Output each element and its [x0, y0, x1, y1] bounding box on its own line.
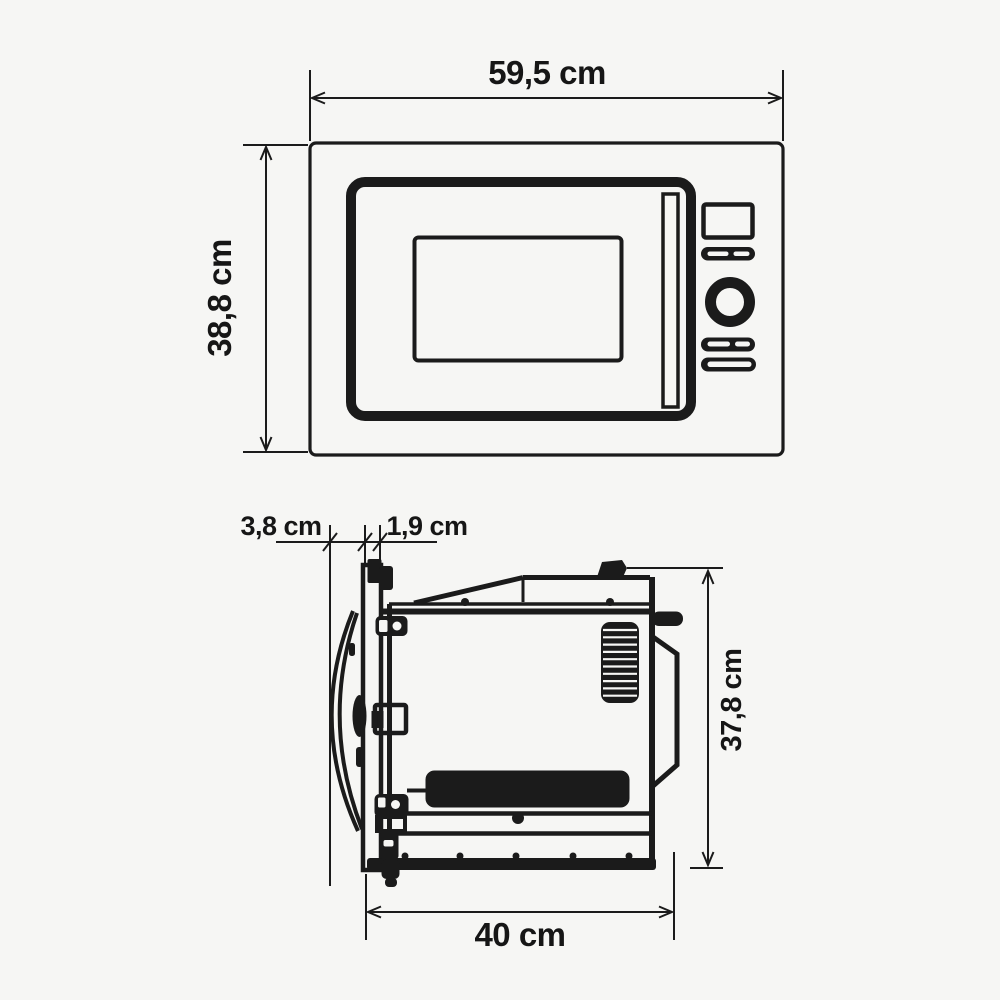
top-hinge-slot: [379, 620, 388, 632]
oven-body: [367, 560, 683, 870]
dimension-drawing-canvas: 59,5 cm 38,8 cm: [0, 0, 1000, 1000]
base-stud: [512, 812, 524, 824]
front-height-label: 38,8 cm: [201, 239, 238, 357]
top-cover-slope: [414, 578, 523, 604]
display: [704, 205, 753, 238]
button-slot: [708, 342, 731, 347]
door-handle-strip: [663, 194, 678, 407]
rear-top-bracket: [597, 560, 627, 577]
button-row-top: [701, 247, 755, 261]
front-view: 59,5 cm 38,8 cm: [201, 54, 783, 455]
hook-part: [379, 566, 393, 590]
microwave-door: [351, 182, 691, 416]
microwave-dimension-diagram: 59,5 cm 38,8 cm: [0, 0, 1000, 1000]
ventilation-grille: [601, 622, 639, 703]
door-window: [415, 238, 622, 361]
button-slot: [708, 252, 729, 257]
rail-stud: [606, 598, 614, 606]
button-slot: [734, 252, 750, 257]
power-connector: [652, 612, 683, 627]
base-bump: [570, 853, 577, 860]
foot-part: [382, 859, 400, 879]
front-width-dimension: 59,5 cm: [310, 54, 783, 141]
button-slot: [708, 362, 752, 368]
base-bump: [626, 853, 633, 860]
base-bump: [457, 853, 464, 860]
rear-standoff-bracket: [653, 637, 677, 786]
button-slot: [735, 342, 750, 347]
bottom-hinge-slot: [378, 798, 386, 808]
base-bump: [513, 853, 520, 860]
vent-body: [601, 622, 639, 703]
front-width-label: 59,5 cm: [488, 54, 606, 91]
side-view: 3,8 cm 1,9 cm: [240, 511, 748, 953]
door-detail: [349, 643, 355, 656]
side-depth-label: 40 cm: [474, 916, 565, 953]
base-bottom-bar: [367, 858, 656, 870]
bottom-vent-slot: [426, 771, 630, 808]
control-panel: [701, 205, 756, 372]
top-hinge-pin: [393, 622, 402, 631]
side-height-label: 37,8 cm: [716, 649, 748, 752]
door-protrusion-label: 3,8 cm: [240, 511, 321, 541]
rail-stud: [461, 598, 469, 606]
bottom-hinge-pin: [391, 800, 400, 809]
base-bump: [402, 853, 409, 860]
foot-part: [385, 878, 397, 887]
button-row-bottom: [701, 358, 756, 372]
side-depth-dimensions: 3,8 cm 1,9 cm: [240, 511, 467, 886]
extension-line: [243, 145, 308, 452]
button-row-middle: [701, 338, 755, 352]
foot-slot: [384, 840, 394, 847]
frame-depth-label: 1,9 cm: [386, 511, 467, 541]
control-knob: [711, 283, 750, 322]
top-mounting-hook: [368, 559, 394, 590]
front-height-dimension: 38,8 cm: [201, 145, 308, 452]
